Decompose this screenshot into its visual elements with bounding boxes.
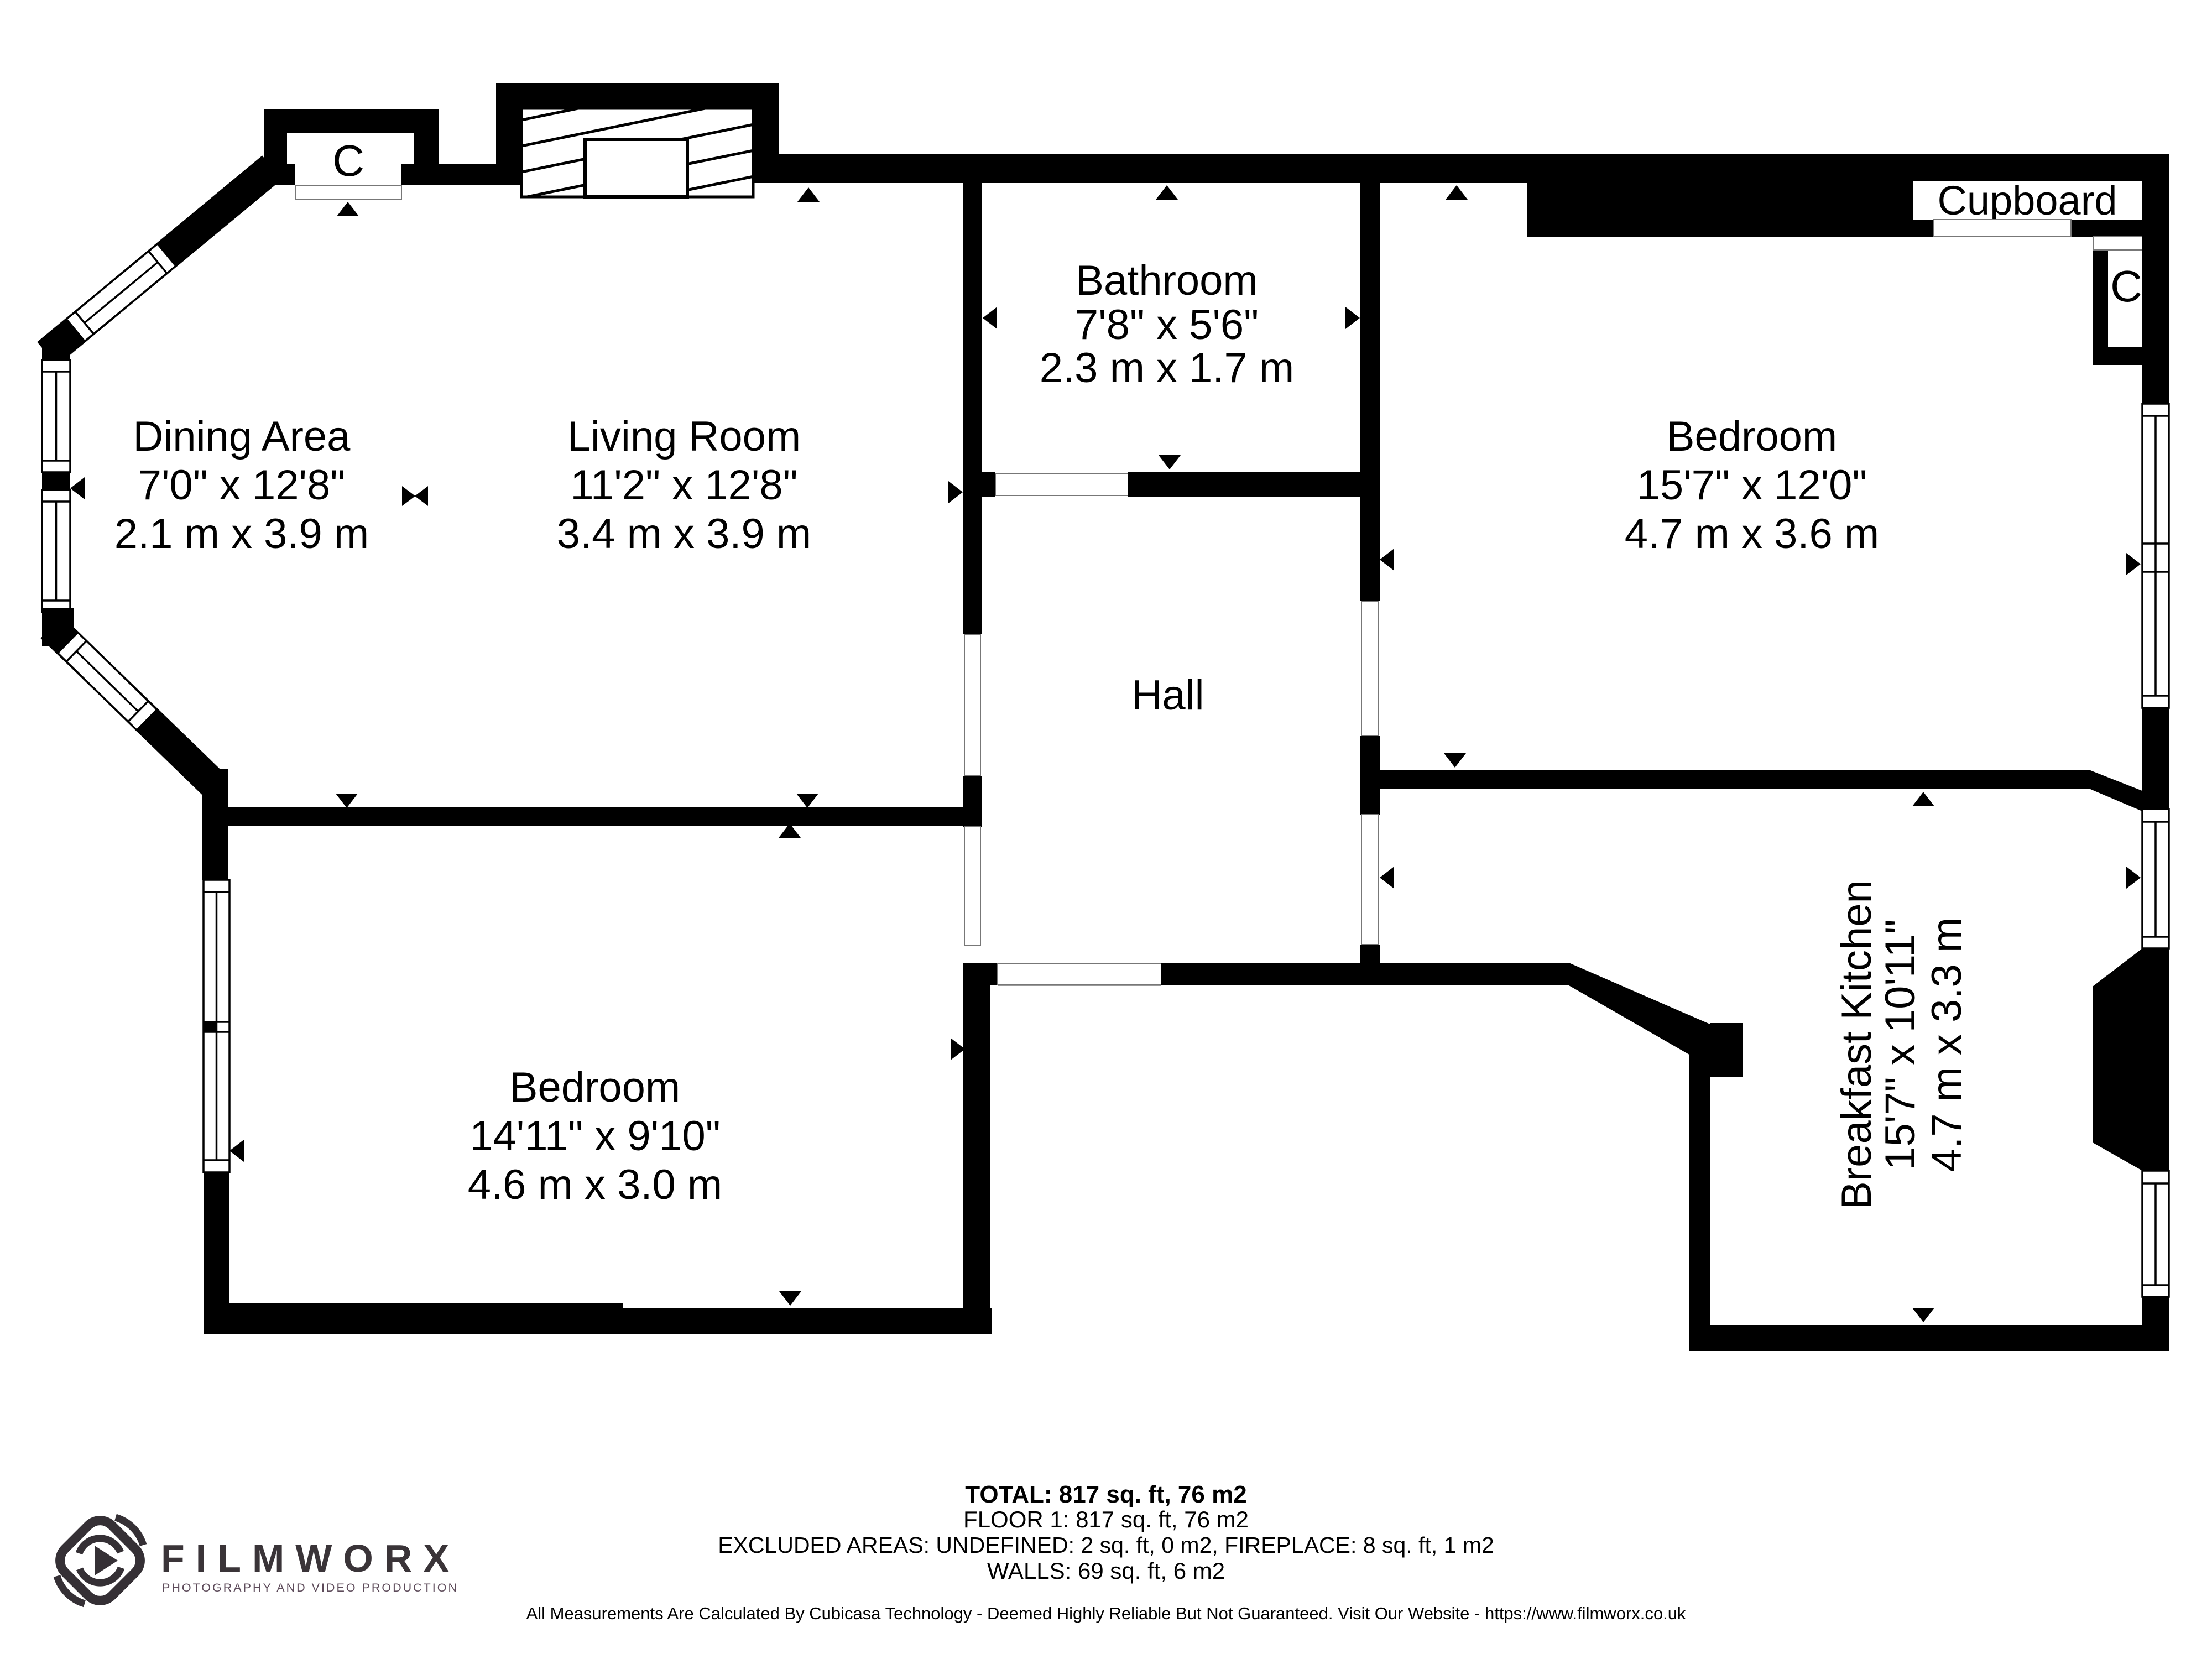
svg-text:15'7" x 12'0": 15'7" x 12'0" [1637,462,1867,509]
svg-text:2.3 m x 1.7 m: 2.3 m x 1.7 m [1040,345,1294,392]
svg-text:7'8" x 5'6": 7'8" x 5'6" [1075,301,1259,348]
svg-text:TOTAL: 817 sq. ft, 76 m2: TOTAL: 817 sq. ft, 76 m2 [965,1481,1246,1508]
svg-text:2.1 m x 3.9 m: 2.1 m x 3.9 m [114,510,369,557]
svg-text:Cupboard: Cupboard [1937,178,2117,223]
svg-text:4.6 m x 3.0 m: 4.6 m x 3.0 m [468,1161,722,1208]
svg-text:FLOOR 1: 817 sq. ft, 76 m2: FLOOR 1: 817 sq. ft, 76 m2 [963,1506,1249,1532]
svg-text:15'7" x 10'11": 15'7" x 10'11" [1877,919,1924,1170]
svg-text:Bedroom: Bedroom [1667,413,1837,460]
svg-text:Living Room: Living Room [567,413,801,460]
svg-text:4.7 m x 3.6 m: 4.7 m x 3.6 m [1625,510,1879,557]
svg-text:WALLS: 69 sq. ft, 6 m2: WALLS: 69 sq. ft, 6 m2 [987,1558,1225,1584]
svg-text:14'11" x 9'10": 14'11" x 9'10" [469,1113,720,1160]
svg-text:11'2" x 12'8": 11'2" x 12'8" [570,462,797,509]
svg-text:3.4 m x 3.9 m: 3.4 m x 3.9 m [557,510,811,557]
svg-text:C: C [332,136,364,185]
svg-text:Bathroom: Bathroom [1076,257,1258,304]
svg-text:EXCLUDED AREAS: UNDEFINED: 2 s: EXCLUDED AREAS: UNDEFINED: 2 sq. ft, 0 m… [718,1532,1494,1558]
svg-text:Dining Area: Dining Area [133,413,351,460]
svg-text:All Measurements Are Calculate: All Measurements Are Calculated By Cubic… [526,1604,1686,1623]
svg-text:C: C [2110,262,2142,311]
svg-text:Hall: Hall [1132,672,1204,719]
svg-text:7'0" x 12'8": 7'0" x 12'8" [138,462,346,509]
svg-text:PHOTOGRAPHY AND VIDEO PRODUCTI: PHOTOGRAPHY AND VIDEO PRODUCTION [162,1581,458,1594]
svg-text:4.7 m x 3.3 m: 4.7 m x 3.3 m [1923,917,1970,1172]
svg-text:Breakfast Kitchen: Breakfast Kitchen [1833,880,1880,1209]
svg-text:Bedroom: Bedroom [510,1064,680,1111]
svg-text:FILMWORX: FILMWORX [161,1537,460,1580]
